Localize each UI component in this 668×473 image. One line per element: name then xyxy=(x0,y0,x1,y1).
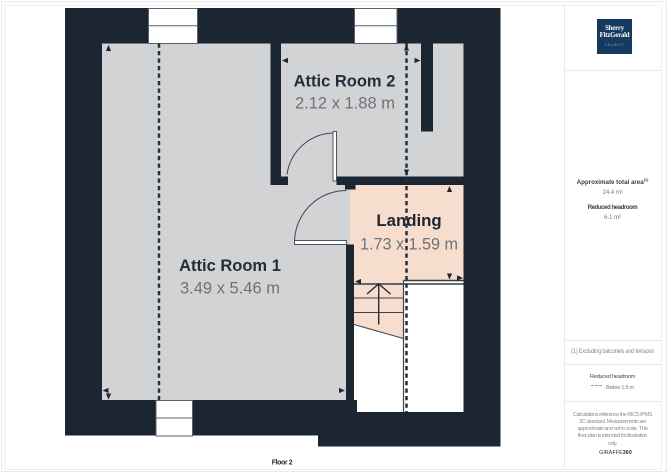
svg-text:1.73 x 1.59 m: 1.73 x 1.59 m xyxy=(360,236,458,254)
svg-text:Attic Room 2: Attic Room 2 xyxy=(294,73,396,91)
svg-text:Floor 2: Floor 2 xyxy=(272,460,293,467)
svg-text:3.49 x 5.46 m: 3.49 x 5.46 m xyxy=(180,280,280,298)
svg-text:2.12 x 1.88 m: 2.12 x 1.88 m xyxy=(295,95,395,113)
svg-text:Landing: Landing xyxy=(376,211,441,230)
svg-text:Attic Room 1: Attic Room 1 xyxy=(179,257,281,275)
